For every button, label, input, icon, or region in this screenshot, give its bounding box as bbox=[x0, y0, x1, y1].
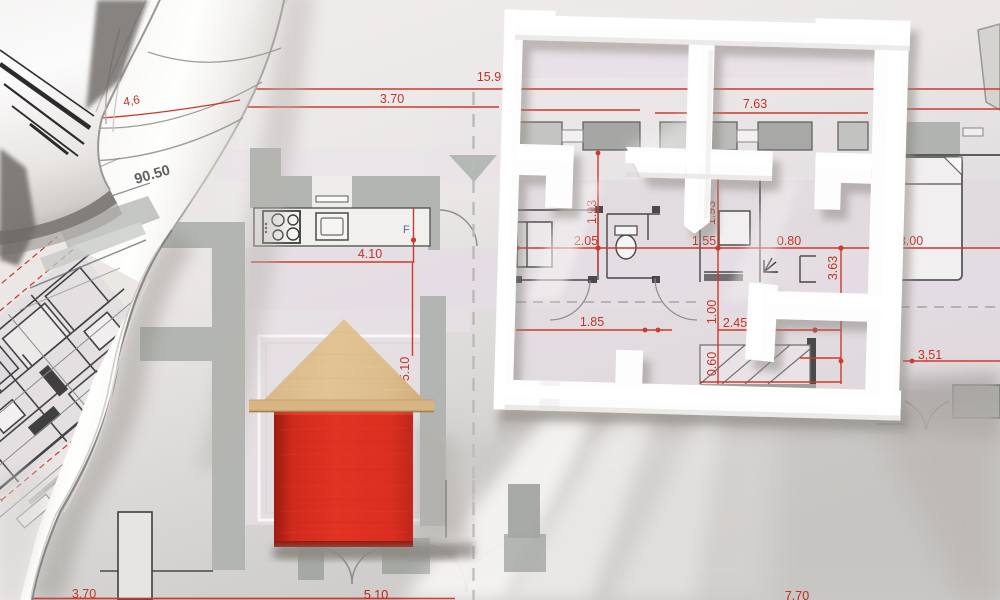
svg-text:4,6: 4,6 bbox=[122, 92, 141, 109]
svg-text:1.85: 1.85 bbox=[580, 315, 604, 329]
svg-text:1.00: 1.00 bbox=[705, 300, 719, 324]
svg-text:5.10: 5.10 bbox=[364, 588, 388, 600]
svg-text:0.60: 0.60 bbox=[705, 352, 719, 376]
svg-text:2.45: 2.45 bbox=[723, 316, 747, 330]
svg-text:7.63: 7.63 bbox=[743, 97, 767, 111]
svg-text:F: F bbox=[403, 224, 410, 236]
svg-text:3,51: 3,51 bbox=[918, 348, 942, 362]
svg-text:7.70: 7.70 bbox=[785, 589, 809, 600]
svg-text:3.70: 3.70 bbox=[380, 92, 404, 106]
svg-text:4.10: 4.10 bbox=[358, 247, 382, 261]
svg-text:3.63: 3.63 bbox=[826, 256, 840, 280]
svg-text:15.9: 15.9 bbox=[477, 70, 501, 84]
